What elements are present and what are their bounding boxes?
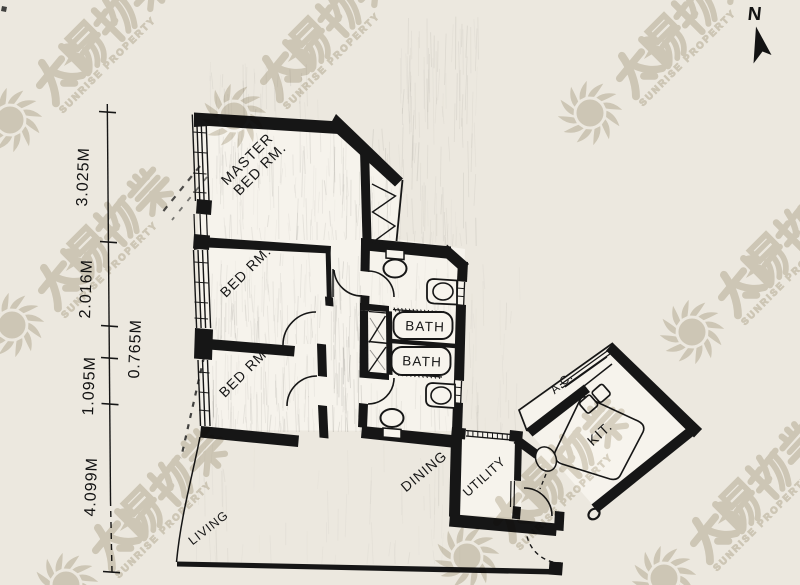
svg-text:0.765M: 0.765M [126, 319, 145, 379]
svg-text:BATH: BATH [405, 318, 445, 334]
svg-text:BATH: BATH [402, 353, 442, 369]
svg-text:1.095M: 1.095M [80, 356, 99, 416]
svg-text:N: N [747, 4, 763, 25]
svg-text:4.099M: 4.099M [82, 457, 101, 517]
svg-text:3.025M: 3.025M [74, 147, 93, 207]
